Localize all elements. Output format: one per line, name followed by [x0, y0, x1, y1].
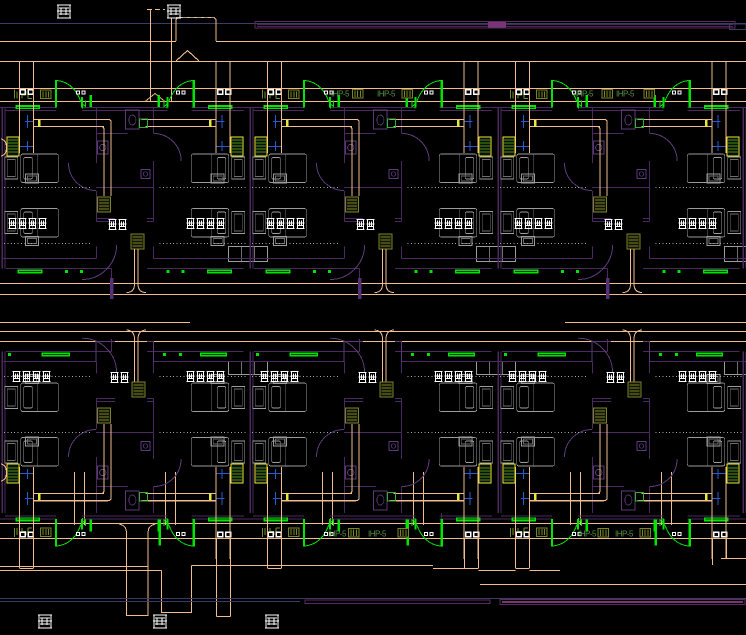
svg-text:IHP-5: IHP-5 — [328, 530, 347, 539]
svg-text:IHP-5: IHP-5 — [578, 530, 597, 539]
svg-text:IHP-5: IHP-5 — [331, 90, 350, 99]
svg-text:IHP-5: IHP-5 — [377, 90, 396, 99]
svg-text:IHP-5: IHP-5 — [575, 90, 594, 99]
svg-text:IHP-5: IHP-5 — [615, 530, 634, 539]
svg-text:IHP-5: IHP-5 — [616, 90, 635, 99]
svg-text:IHP-5: IHP-5 — [368, 530, 387, 539]
